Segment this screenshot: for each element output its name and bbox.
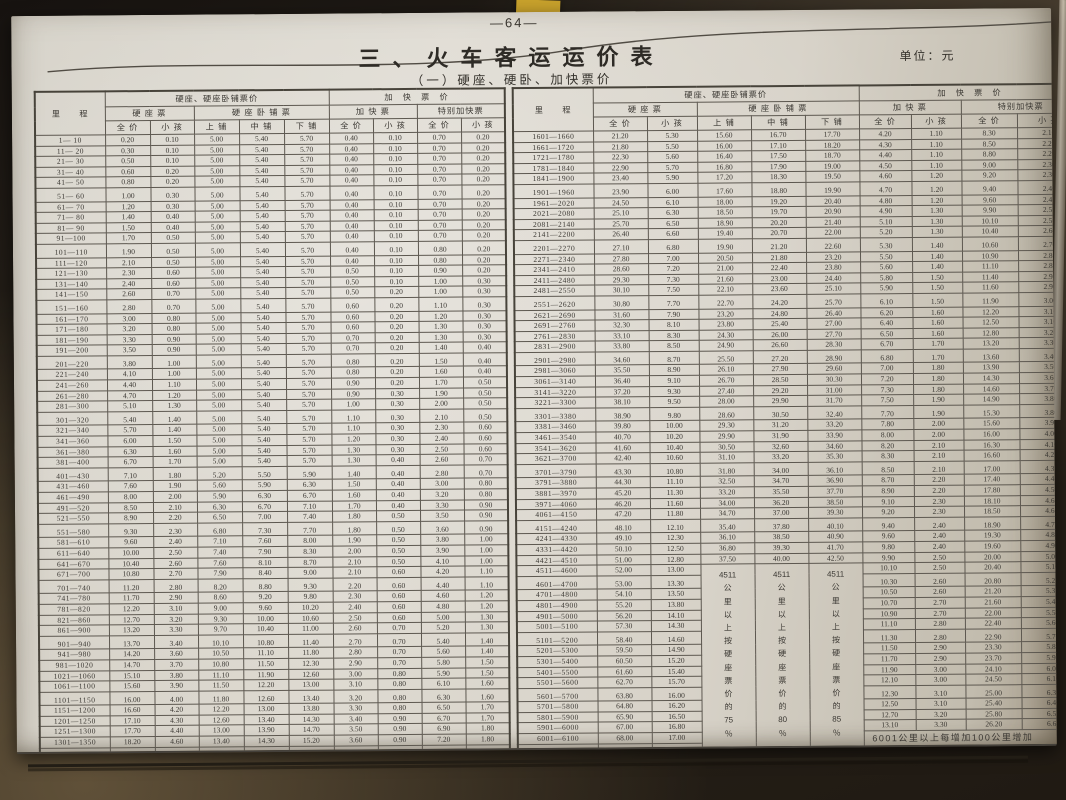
fare-cell: 6.30 — [648, 207, 698, 218]
header-col-full: 全 价 — [105, 121, 150, 135]
mileage-cell: 1721—1780 — [513, 152, 593, 163]
fare-cell: 1.40 — [912, 237, 962, 251]
fare-cell: 3.00 — [915, 674, 965, 685]
fare-cell: 1.60 — [152, 446, 196, 457]
fare-cell: 4.10 — [420, 556, 464, 567]
mileage-cell: 5401—5500 — [517, 667, 597, 678]
fare-cell: 36.10 — [808, 462, 862, 476]
fare-cell: 3.90 — [154, 680, 198, 691]
fare-cell: 18.80 — [751, 182, 805, 196]
fare-cell: 68.00 — [598, 733, 652, 744]
fare-cell: 5.00 — [194, 176, 239, 187]
fare-cell: 2.90 — [1018, 271, 1057, 282]
fare-cell: 5.70 — [285, 221, 330, 232]
header-col-child: 小 孩 — [647, 116, 697, 130]
fare-cell: 38.50 — [808, 497, 862, 508]
fare-cell: 0.80 — [377, 689, 421, 703]
fare-cell: 1.00 — [105, 187, 150, 201]
fare-cell: 0.40 — [329, 133, 373, 144]
fare-cell: 5.10 — [860, 216, 912, 227]
mileage-cell: 2481—2550 — [514, 285, 594, 296]
fare-cell: 11.80 — [198, 690, 243, 704]
fare-cell: 5.10 — [107, 401, 152, 412]
fare-cell: 5.20 — [197, 467, 242, 481]
fare-cell: 0.20 — [461, 153, 505, 164]
fare-cell: 2.20 — [1017, 138, 1057, 149]
mileage-cell: 5701—5800 — [518, 701, 598, 712]
fare-cell: 33.90 — [807, 430, 861, 441]
fare-cell: 9.30 — [198, 613, 243, 624]
fare-cell: 5.40 — [241, 344, 286, 355]
fare-cell: 9.20 — [862, 507, 914, 518]
fare-cell: 7.40 — [422, 745, 466, 754]
fare-cell: 18.10 — [964, 495, 1020, 506]
mileage-cell: 5601—5700 — [517, 688, 597, 702]
fare-cell: 36.10 — [700, 532, 754, 543]
fare-cell: 8.30 — [287, 546, 332, 557]
header-col-child: 小 孩 — [373, 118, 417, 132]
fare-cell: 7.80 — [861, 419, 913, 430]
fare-cell: 16.00 — [697, 140, 751, 151]
mileage-cell: 141—150 — [36, 289, 106, 300]
mileage-cell: 2141—2200 — [514, 229, 594, 240]
fare-cell: 2.80 — [154, 579, 198, 593]
fare-cell: 0.40 — [376, 479, 420, 490]
fare-cell: 0.50 — [376, 545, 420, 556]
fare-cell: 19.00 — [805, 161, 859, 172]
fare-cell: 14.70 — [289, 725, 334, 736]
fare-cell: 8.80 — [243, 578, 288, 592]
fare-cell: 5.00 — [195, 267, 240, 278]
fare-cell: 5.10 — [1020, 561, 1056, 572]
header-col-full: 全 价 — [593, 117, 647, 131]
fare-cell: 3.80 — [1019, 404, 1057, 418]
fare-cell: 1.90 — [913, 405, 963, 419]
fare-cell: 0.80 — [418, 255, 462, 266]
mileage-cell: 3221—3300 — [515, 397, 595, 408]
fare-cell: 5.70 — [284, 186, 329, 200]
fare-cell: 2.10 — [419, 409, 463, 423]
fare-cell: 12.10 — [863, 675, 915, 686]
unit-note: 单位：元 — [899, 47, 955, 64]
mileage-cell: 641—670 — [38, 558, 108, 569]
fare-cell: 1.10 — [331, 410, 375, 424]
fare-cell: 1.40 — [419, 342, 463, 353]
fare-cell: 24.90 — [699, 340, 753, 351]
fare-cell: 18.30 — [751, 172, 805, 183]
fare-cell: 5.60 — [860, 262, 912, 273]
fare-cell: 8.60 — [198, 592, 243, 603]
header-col-full: 全 价 — [329, 119, 373, 133]
fare-cell: 5.90 — [287, 466, 332, 480]
fare-cell: 36.20 — [754, 497, 808, 508]
fare-cell: 41.70 — [808, 542, 862, 553]
fare-cell: 1.80 — [913, 384, 963, 395]
fare-cell: 20.90 — [806, 206, 860, 217]
fare-cell: 0.90 — [464, 499, 508, 510]
fare-cell: 5.00 — [196, 379, 241, 390]
fare-cell: 3.30 — [1019, 337, 1057, 348]
sleeper-percent-note-cell: 4511 公 里 以 上 按 硬 座 票 价 的 85 ％ — [808, 563, 864, 754]
fare-cell: 0.80 — [464, 478, 508, 489]
fare-cell: 2.30 — [1017, 170, 1056, 181]
fare-cell: 5.40 — [421, 633, 465, 647]
fare-cell: 3.00 — [1018, 292, 1057, 306]
fare-cell: 8.80 — [961, 149, 1017, 160]
sleeper-percent-note-cell: 4511 公 里 以 上 按 硬 座 票 价 的 80 ％ — [754, 564, 810, 755]
fare-cell: 0.60 — [377, 601, 421, 612]
fare-cell: 5.00 — [196, 355, 241, 369]
fare-cell: 1.10 — [418, 297, 462, 311]
fare-cell: 31.20 — [753, 420, 807, 431]
fare-cell: 48.10 — [596, 519, 650, 533]
fare-cell: 0.10 — [150, 145, 194, 156]
fare-cell: 11.90 — [243, 669, 288, 680]
fare-cell: 7.40 — [197, 547, 242, 558]
fare-cell: 11.40 — [962, 271, 1018, 282]
fare-cell: 4.00 — [1019, 428, 1056, 439]
page-number: —64— — [459, 15, 569, 31]
fare-cell: 31.10 — [700, 452, 754, 463]
fare-cell: 5.70 — [286, 368, 331, 379]
fare-cell: 0.80 — [378, 703, 422, 714]
fare-cell: 7.90 — [197, 568, 242, 579]
fare-cell: 61.60 — [597, 666, 651, 677]
mileage-cell: 981—1020 — [39, 660, 109, 671]
fare-cell: 1.50 — [152, 435, 196, 446]
fare-cell: 1.30 — [465, 611, 509, 622]
fare-cell: 5.70 — [285, 200, 330, 211]
fare-cell: 26.60 — [753, 340, 807, 351]
fare-cell: 5.90 — [1021, 652, 1057, 663]
fare-cell: 5.00 — [196, 400, 241, 411]
fare-cell: 9.50 — [649, 396, 699, 407]
fare-cell: 1.20 — [911, 171, 961, 182]
fare-cell: 5.30 — [1021, 586, 1057, 597]
fare-cell: 4.40 — [1020, 474, 1057, 485]
fare-cell: 1.00 — [464, 555, 508, 566]
fare-cell: 18.50 — [964, 506, 1020, 517]
fare-cell: 9.80 — [288, 591, 333, 602]
fare-cell: 1.50 — [912, 293, 962, 307]
fare-cell: 62.70 — [597, 677, 651, 688]
fare-cell: 4.70 — [107, 390, 152, 401]
fare-cell: 10.80 — [243, 634, 288, 648]
fare-cell: 3.10 — [1018, 306, 1056, 317]
fare-cell: 1.60 — [465, 678, 509, 689]
fare-cell: 5.70 — [286, 399, 331, 410]
mileage-cell: 21— 30 — [35, 156, 105, 167]
fare-cell: 10.40 — [649, 442, 699, 453]
fare-cell: 43.30 — [596, 463, 650, 477]
fare-cell: 0.20 — [461, 132, 505, 143]
fare-cell: 0.30 — [462, 275, 506, 286]
fare-cell: 0.10 — [373, 185, 417, 199]
fare-cell: 0.30 — [463, 331, 507, 342]
fare-cell: 0.50 — [463, 387, 507, 398]
fare-cell: 4.10 — [107, 369, 152, 380]
fare-cell: 33.20 — [807, 419, 861, 430]
fare-cell: 1.10 — [331, 423, 375, 434]
fare-cell: 5.40 — [1021, 596, 1057, 607]
fare-cell: 33.20 — [754, 452, 808, 463]
fare-cell: 19.30 — [964, 530, 1020, 541]
fare-cell: 0.70 — [418, 220, 462, 231]
mileage-cell: 341—360 — [37, 436, 107, 447]
fare-cell: 0.60 — [377, 612, 421, 623]
fare-cell: 13.40 — [244, 714, 289, 725]
fare-cell: 5.70 — [285, 256, 330, 267]
fare-cell: 0.20 — [375, 343, 419, 354]
fare-cell: 21.80 — [752, 252, 806, 263]
fare-cell: 2.20 — [1017, 148, 1057, 159]
fare-cell: 1.90 — [913, 394, 963, 405]
fare-cell: 3.10 — [915, 685, 965, 699]
fare-cell: 11.10 — [650, 477, 700, 488]
mileage-cell: 4601—4700 — [517, 576, 597, 590]
fare-cell: 3.20 — [916, 709, 966, 720]
mileage-cell: 1901—1960 — [513, 184, 593, 198]
fare-cell: 14.30 — [289, 714, 334, 725]
fare-cell: 7.70 — [287, 522, 332, 536]
fare-cell: 1.40 — [465, 646, 509, 657]
fare-cell: 28.60 — [594, 264, 648, 275]
fare-cell: 5.40 — [241, 389, 286, 400]
fare-cell: 41.60 — [595, 442, 649, 453]
fare-cell: 3.10 — [333, 679, 377, 690]
fare-cell: 2.00 — [913, 429, 963, 440]
fare-cell: 7.30 — [242, 522, 287, 536]
fare-cell: 29.90 — [753, 396, 807, 407]
fare-cell: 13.40 — [199, 736, 244, 747]
fare-cell: 1.50 — [465, 667, 509, 678]
fare-cell: 1.00 — [464, 534, 508, 545]
fare-cell: 3.30 — [334, 703, 378, 714]
fare-cell: 25.80 — [966, 709, 1022, 720]
fare-cell: 16.00 — [651, 687, 701, 701]
fare-cell: 16.60 — [110, 705, 155, 716]
fare-cell: 59.50 — [597, 645, 651, 656]
mileage-cell: 2551—2620 — [514, 296, 594, 310]
fare-cell: 22.90 — [965, 628, 1021, 642]
fare-cell: 23.90 — [593, 184, 647, 198]
mileage-cell: 3381—3460 — [515, 421, 595, 432]
fare-cell: 5.00 — [195, 299, 240, 313]
fare-cell: 0.50 — [463, 377, 507, 388]
fare-cell: 9.60 — [962, 194, 1018, 205]
fare-cell: 11.40 — [288, 634, 333, 648]
fare-cell: 19.70 — [752, 207, 806, 218]
fare-cell: 5.70 — [285, 231, 330, 242]
fare-cell: 19.90 — [805, 182, 859, 196]
fare-cell: 12.50 — [963, 317, 1019, 328]
fare-cell: 13.10 — [864, 720, 916, 731]
fare-cell: 5.70 — [284, 154, 329, 165]
fare-cell: 60.50 — [597, 655, 651, 666]
fare-cell: 6.40 — [861, 318, 913, 329]
fare-cell: 2.80 — [915, 629, 965, 643]
fare-cell: 5.00 — [197, 456, 242, 467]
fare-cell: 0.20 — [375, 321, 419, 332]
fare-cell: 10.90 — [863, 608, 915, 619]
fare-cell: 0.40 — [376, 465, 420, 479]
fare-cell: 3.80 — [154, 670, 198, 681]
fare-cell: 24.30 — [699, 329, 753, 340]
fare-cell: 13.20 — [109, 625, 154, 636]
fare-cell: 5.40 — [241, 434, 286, 445]
fare-cell: 16.70 — [751, 129, 805, 140]
fare-cell: 9.40 — [961, 181, 1017, 195]
fare-cell: 0.70 — [331, 343, 375, 354]
fare-cell: 0.20 — [462, 265, 506, 276]
mileage-cell: 91—100 — [36, 233, 106, 244]
fare-cell: 10.00 — [108, 547, 153, 558]
fare-cell: 6.60 — [1022, 719, 1057, 730]
mileage-cell: 1601—1660 — [513, 131, 593, 142]
fare-cell: 5.30 — [647, 130, 697, 141]
fare-cell: 2.00 — [332, 546, 376, 557]
fare-cell: 9.80 — [649, 407, 699, 421]
fare-cell: 32.50 — [700, 476, 754, 487]
fare-cell: 9.60 — [862, 531, 914, 542]
fare-cell: 5.70 — [286, 322, 331, 333]
fare-cell: 14.70 — [109, 659, 154, 670]
fare-cell: 0.30 — [375, 409, 419, 423]
fare-cell: 0.40 — [151, 222, 195, 233]
fare-cell: 8.10 — [242, 557, 287, 568]
fare-cell: 10.00 — [243, 613, 288, 624]
fare-cell: 0.20 — [105, 135, 150, 146]
fare-cell: 3.00 — [915, 664, 965, 675]
mileage-cell: 401—430 — [38, 468, 108, 482]
page-bottom-edge — [28, 756, 1028, 768]
fare-cell: 2.40 — [153, 537, 197, 548]
fare-cell: 6.40 — [1022, 697, 1057, 708]
mileage-cell: 171—180 — [37, 324, 107, 335]
fare-cell: 13.90 — [244, 725, 289, 736]
fare-cell: 5.70 — [285, 298, 330, 312]
fare-cell: 5.00 — [196, 344, 241, 355]
fare-cell: 1.20 — [465, 601, 509, 612]
mileage-cell: 51— 60 — [35, 188, 105, 202]
fare-cell: 5.40 — [240, 277, 285, 288]
mileage-cell: 3141—3220 — [515, 387, 595, 398]
mileage-cell: 181—190 — [37, 335, 107, 346]
fare-cell: 10.40 — [243, 624, 288, 635]
mileage-cell: 1251—1300 — [40, 726, 110, 737]
fare-cell: 8.50 — [961, 138, 1017, 149]
fare-cell: 6.30 — [421, 689, 465, 703]
fare-cell: 16.00 — [963, 429, 1019, 440]
fare-cell: 2.50 — [1018, 204, 1057, 215]
mileage-cell: 3061—3140 — [515, 376, 595, 387]
fare-cell: 6.00 — [1021, 663, 1057, 674]
fare-cell: 11.50 — [198, 680, 243, 691]
fare-cell: 22.00 — [965, 607, 1021, 618]
fare-cell: 1.80 — [466, 734, 510, 745]
fare-cell: 0.20 — [462, 198, 506, 209]
fare-cell: 25.40 — [753, 318, 807, 329]
fare-cell: 30.30 — [807, 374, 861, 385]
fare-cell: 7.20 — [861, 374, 913, 385]
fare-cell: 10.80 — [198, 659, 243, 670]
fare-cell: 0.40 — [330, 255, 374, 266]
fare-cell: 18.50 — [698, 207, 752, 218]
fare-cell: 15.60 — [109, 681, 154, 692]
fare-cell: 29.90 — [699, 431, 753, 442]
mileage-cell: 3301—3380 — [515, 408, 595, 422]
fare-cell: 35.30 — [808, 451, 862, 462]
fare-cell: 2.30 — [333, 591, 377, 602]
fare-cell: 52.00 — [596, 565, 650, 576]
fare-cell: 14.30 — [651, 620, 701, 631]
fare-cell: 6.50 — [648, 218, 698, 229]
fare-cell: 5.00 — [421, 612, 465, 623]
fare-cell: 44.30 — [596, 477, 650, 488]
fare-cell: 0.30 — [150, 187, 194, 201]
header-group-seat: 硬座、硬座卧铺票价 — [105, 90, 329, 107]
fare-cell: 1.10 — [464, 566, 508, 577]
mileage-cell: 5001—5100 — [517, 621, 597, 632]
fare-cell: 1.20 — [912, 195, 962, 206]
fare-cell: 21.80 — [593, 141, 647, 152]
fare-cell: 3.60 — [334, 735, 378, 746]
fare-cell: 2.40 — [914, 517, 964, 531]
fare-row: 6201—630070.2017.60 — [518, 753, 1057, 754]
fare-cell: 33.80 — [595, 341, 649, 352]
fare-cell: 1.00 — [152, 369, 196, 380]
fare-cell: 7.50 — [648, 285, 698, 296]
fare-cell: 0.80 — [377, 668, 421, 679]
mileage-cell: 3701—3790 — [516, 464, 596, 478]
fare-cell: 2.90 — [1018, 282, 1057, 293]
fare-cell: 5.40 — [239, 176, 284, 187]
fare-cell: 17.00 — [652, 732, 702, 743]
fare-cell: 0.80 — [418, 241, 462, 255]
fare-cell: 0.60 — [463, 422, 507, 433]
fare-cell: 10.80 — [650, 463, 700, 477]
fare-cell: 6.70 — [108, 457, 153, 468]
header-col-lower: 下 铺 — [284, 119, 329, 133]
fare-cell: 24.50 — [594, 197, 648, 208]
fare-cell: 5.00 — [194, 187, 239, 201]
fare-cell: 26.10 — [699, 364, 753, 375]
fare-cell: 5.00 — [195, 312, 240, 323]
fare-cell: 0.50 — [330, 287, 374, 298]
fare-cell: 2.80 — [1018, 250, 1057, 261]
fare-cell: 42.50 — [808, 552, 862, 563]
mileage-cell: 121—130 — [36, 268, 106, 279]
fare-cell: 5.50 — [1021, 607, 1057, 618]
fare-cell: 13.00 — [199, 725, 244, 736]
fare-cell: 3.70 — [154, 659, 198, 670]
fare-cell: 0.70 — [151, 299, 195, 313]
fare-cell: 27.90 — [753, 364, 807, 375]
fare-cell: 18.00 — [698, 196, 752, 207]
fare-cell: 5.60 — [1021, 617, 1057, 628]
fare-cell: 1.10 — [465, 576, 509, 590]
header-col-upper: 上 铺 — [697, 116, 751, 130]
fare-cell: 1.20 — [106, 201, 151, 212]
fare-cell: 9.30 — [288, 578, 333, 592]
fare-cell: 5.70 — [285, 266, 330, 277]
fare-cell: 8.00 — [861, 430, 913, 441]
fare-cell: 30.80 — [594, 296, 648, 310]
fare-cell: 8.90 — [108, 513, 153, 524]
fare-cell: 1.80 — [466, 723, 510, 734]
header-sub-special: 特别加快票 — [417, 104, 505, 119]
fare-cell: 0.40 — [329, 154, 373, 165]
